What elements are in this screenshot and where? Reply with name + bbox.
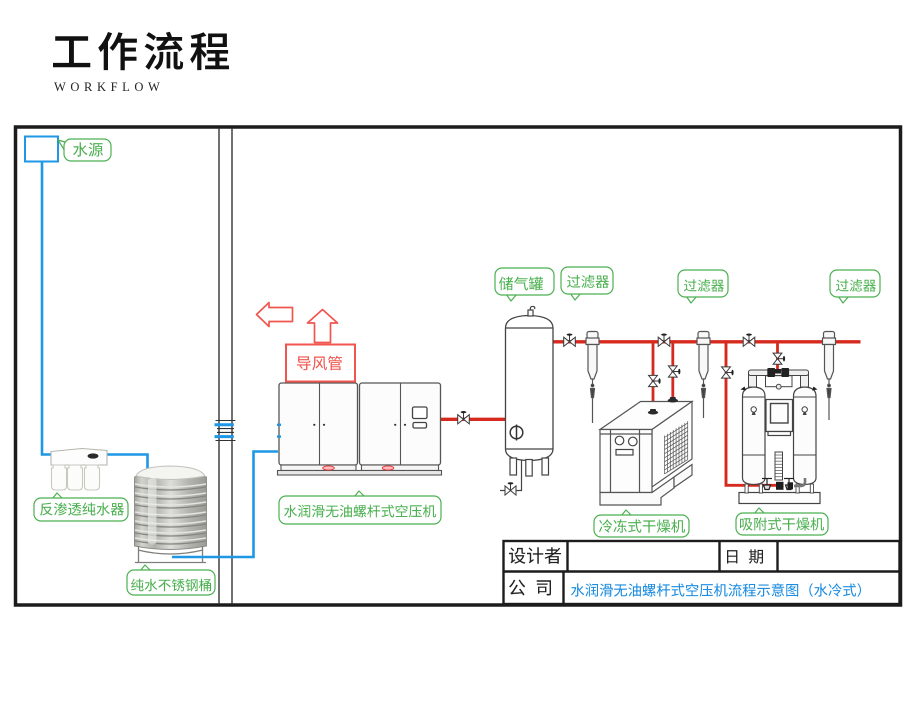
svg-text:WORKFLOW: WORKFLOW	[54, 80, 164, 94]
